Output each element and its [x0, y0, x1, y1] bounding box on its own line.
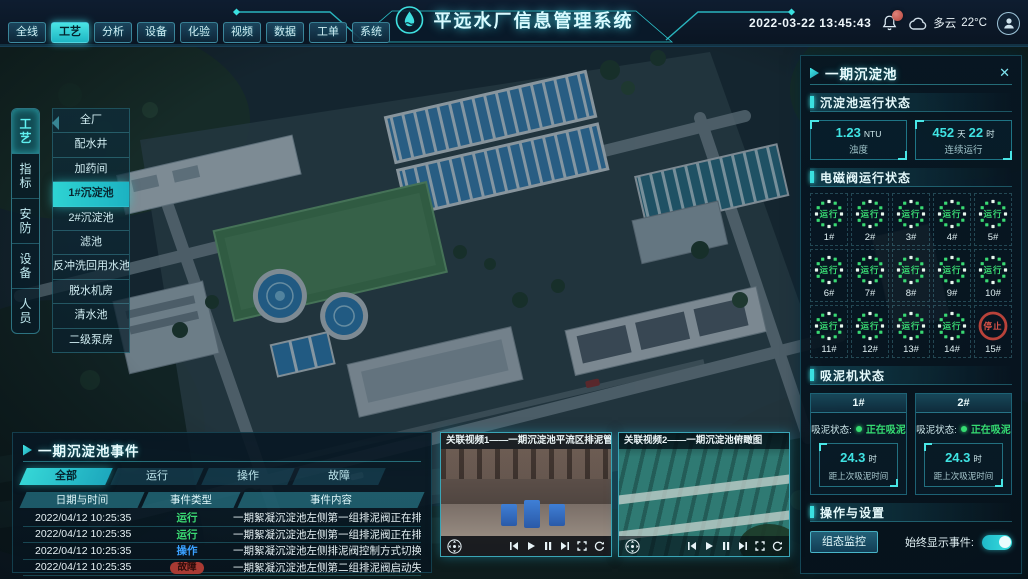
event-filter-tabs: 全部运行操作故障 — [23, 468, 421, 485]
app-logo-icon — [395, 5, 425, 35]
skip-forward-icon[interactable] — [560, 541, 570, 551]
event-tab-故障[interactable]: 故障 — [292, 468, 386, 485]
event-type: 运行 — [141, 527, 233, 542]
section-bar-icon — [810, 506, 814, 518]
valve-8#[interactable]: 运行8# — [892, 249, 930, 302]
valve-gauge-icon: 运行 — [812, 309, 846, 343]
submenu-item-清水池[interactable]: 清水池 — [53, 304, 129, 328]
nav-tab-化验[interactable]: 化验 — [180, 22, 218, 43]
event-row[interactable]: 2022/04/12 10:25:35故障一期絮凝沉淀池左侧第二组排泥阀启动失败 — [23, 560, 421, 577]
weather-display: 多云 22°C — [908, 15, 987, 31]
user-avatar[interactable] — [997, 12, 1020, 35]
sedimentation-pool-panel: 一期沉淀池 ✕ 沉淀池运行状态 1.23 NTU 浊度 452 天 22 时 连… — [800, 55, 1022, 574]
sidebar-tab-设备[interactable]: 设备 — [12, 244, 39, 289]
panel-title: 一期沉淀池 — [825, 63, 997, 83]
event-row[interactable]: 2022/04/12 10:25:35运行一期絮凝沉淀池左侧第一组排泥阀正在排泥 — [23, 527, 421, 544]
submenu-item-滤池[interactable]: 滤池 — [53, 231, 129, 255]
suction-value-box: 24.3时 距上次吸泥时间 — [924, 443, 1003, 487]
valve-12#[interactable]: 运行12# — [851, 305, 889, 358]
operations-row: 组态监控 始终显示事件: — [810, 531, 1012, 553]
mud-suction-cards: 1# 吸泥状态: 正在吸泥 24.3时 距上次吸泥时间 2# 吸泥状态: 正在吸… — [810, 393, 1012, 495]
panel-title-marker-icon — [810, 68, 819, 79]
valve-gauge-icon: 运行 — [853, 197, 887, 231]
nav-tab-系统[interactable]: 系统 — [352, 22, 390, 43]
valve-6#[interactable]: 运行6# — [810, 249, 848, 302]
suction-caption: 距上次吸泥时间 — [820, 470, 897, 482]
suction-status: 正在吸泥 — [971, 421, 1011, 436]
column-header-日期与时间: 日期与时间 — [19, 492, 144, 508]
section-running-status: 沉淀池运行状态 — [810, 93, 1012, 112]
video-controls — [619, 536, 789, 556]
valve-gauge-icon: 运行 — [935, 253, 969, 287]
submenu-item-1#沉淀池[interactable]: 1#沉淀池 — [53, 182, 129, 206]
suction-status: 正在吸泥 — [866, 421, 906, 436]
turbidity-unit: NTU — [864, 129, 881, 139]
event-type: 故障 — [141, 561, 233, 574]
top-bar: 全线工艺分析设备化验视频数据工单系统 平远水厂信息管理系统 2022-03-22… — [0, 0, 1028, 47]
left-sidebar-tabs: 工艺指标安防设备人员 — [11, 108, 40, 334]
suction-hours: 24.3 — [945, 450, 970, 465]
turbidity-label: 浊度 — [849, 142, 868, 156]
always-show-events-toggle[interactable] — [982, 535, 1012, 550]
section-valves: 电磁阀运行状态 — [810, 168, 1012, 187]
submenu-item-全厂[interactable]: 全厂 — [53, 109, 129, 133]
event-time: 2022/04/12 10:25:35 — [23, 528, 141, 540]
valve-status-grid: 运行1#运行2#运行3#运行4#运行5#运行6#运行7#运行8#运行9#运行10… — [810, 193, 1012, 358]
valve-gauge-icon: 运行 — [894, 197, 928, 231]
submenu-item-二级泵房[interactable]: 二级泵房 — [53, 329, 129, 352]
valve-gauge-icon: 运行 — [853, 253, 887, 287]
column-header-事件类型: 事件类型 — [141, 492, 240, 508]
uptime-days-unit: 天 — [957, 128, 966, 140]
video-title: 关联视频1——一期沉淀池平流区排泥管廊 — [441, 433, 611, 449]
nav-tab-设备[interactable]: 设备 — [137, 22, 175, 43]
event-row[interactable]: 2022/04/12 10:25:35操作一期絮凝沉淀池左侧排泥阀控制方式切换为… — [23, 543, 421, 560]
uptime-card: 452 天 22 时 连续运行 — [915, 120, 1012, 160]
fault-badge: 故障 — [170, 562, 203, 574]
valve-gauge-icon: 运行 — [894, 253, 928, 287]
panel-title-marker-icon — [23, 445, 32, 456]
video-panel-2[interactable]: 关联视频2——一期沉淀池俯瞰图 — [618, 432, 790, 557]
video-panel-1[interactable]: 关联视频1——一期沉淀池平流区排泥管廊 — [440, 432, 612, 557]
status-dot-icon — [856, 426, 862, 432]
valve-gauge-icon: 运行 — [935, 197, 969, 231]
cloud-icon — [908, 17, 928, 30]
process-submenu: 全厂配水井加药间1#沉淀池2#沉淀池滤池反冲洗回用水池脱水机房清水池二级泵房 — [52, 108, 130, 353]
uptime-days: 452 — [932, 125, 954, 140]
event-time: 2022/04/12 10:25:35 — [23, 561, 141, 573]
ptz-pad-icon[interactable] — [447, 539, 462, 554]
valve-14#[interactable]: 运行14# — [933, 305, 971, 358]
valve-15#[interactable]: 停止15# — [974, 305, 1012, 358]
submenu-item-反冲洗回用水池[interactable]: 反冲洗回用水池 — [53, 255, 129, 279]
loop-icon[interactable] — [772, 541, 783, 551]
nav-tab-分析[interactable]: 分析 — [94, 22, 132, 43]
running-status-cards: 1.23 NTU 浊度 452 天 22 时 连续运行 — [810, 120, 1012, 160]
valve-4#[interactable]: 运行4# — [933, 193, 971, 246]
video-controls — [441, 536, 611, 556]
nav-tab-数据[interactable]: 数据 — [266, 22, 304, 43]
submenu-item-加药间[interactable]: 加药间 — [53, 158, 129, 182]
sidebar-tab-指标[interactable]: 指标 — [12, 154, 39, 199]
section-bar-icon — [810, 171, 814, 183]
event-content: 一期絮凝沉淀池左侧第一组排泥阀正在排泥 — [233, 510, 421, 525]
valve-3#[interactable]: 运行3# — [892, 193, 930, 246]
valve-13#[interactable]: 运行13# — [892, 305, 930, 358]
mud-machine-card-1: 1# 吸泥状态: 正在吸泥 24.3时 距上次吸泥时间 — [810, 393, 907, 495]
suction-hours-unit: 时 — [973, 454, 982, 464]
event-content: 一期絮凝沉淀池左侧第一组排泥阀正在排泥 — [233, 527, 421, 542]
event-time: 2022/04/12 10:25:35 — [23, 512, 141, 524]
valve-gauge-icon: 运行 — [976, 253, 1010, 287]
valve-gauge-icon: 运行 — [894, 309, 928, 343]
suction-caption: 距上次吸泥时间 — [925, 470, 1002, 482]
event-table-rows: 2022/04/12 10:25:35运行一期絮凝沉淀池左侧第一组排泥阀正在排泥… — [23, 510, 421, 576]
nav-tab-全线[interactable]: 全线 — [8, 22, 46, 43]
valve-gauge-icon: 运行 — [935, 309, 969, 343]
mud-machine-card-2: 2# 吸泥状态: 正在吸泥 24.3时 距上次吸泥时间 — [915, 393, 1012, 495]
event-panel-title: 一期沉淀池事件 — [38, 440, 421, 460]
submenu-item-配水井[interactable]: 配水井 — [53, 133, 129, 157]
turbidity-value: 1.23 — [836, 125, 861, 140]
event-tab-全部[interactable]: 全部 — [19, 468, 113, 485]
event-panel: 一期沉淀池事件 全部运行操作故障 日期与时间事件类型事件内容 2022/04/1… — [12, 432, 432, 573]
fullscreen-icon[interactable] — [577, 541, 587, 551]
event-panel-header: 一期沉淀池事件 — [23, 439, 421, 462]
suction-status-label: 吸泥状态: — [916, 422, 957, 436]
event-content: 一期絮凝沉淀池左侧第二组排泥阀启动失败 — [233, 560, 421, 575]
play-icon[interactable] — [704, 541, 714, 551]
skip-forward-icon[interactable] — [738, 541, 748, 551]
sidebar-tab-安防[interactable]: 安防 — [12, 199, 39, 244]
valve-gauge-icon: 运行 — [812, 253, 846, 287]
event-time: 2022/04/12 10:25:35 — [23, 545, 141, 557]
close-icon[interactable]: ✕ — [997, 65, 1012, 81]
section-bar-icon — [810, 96, 814, 108]
weather-condition: 多云 — [933, 15, 956, 31]
top-nav-tabs: 全线工艺分析设备化验视频数据工单系统 — [8, 22, 390, 43]
submenu-item-脱水机房[interactable]: 脱水机房 — [53, 280, 129, 304]
suction-value-box: 24.3时 距上次吸泥时间 — [819, 443, 898, 487]
uptime-hours-unit: 时 — [986, 128, 995, 140]
skip-back-icon[interactable] — [509, 541, 519, 551]
submenu-item-2#沉淀池[interactable]: 2#沉淀池 — [53, 207, 129, 231]
play-icon[interactable] — [526, 541, 536, 551]
valve-gauge-icon: 运行 — [853, 309, 887, 343]
valve-10#[interactable]: 运行10# — [974, 249, 1012, 302]
pause-icon[interactable] — [543, 541, 553, 551]
ptz-pad-icon[interactable] — [625, 539, 640, 554]
machine-id: 1# — [811, 394, 906, 413]
event-type: 操作 — [141, 543, 233, 558]
weather-temperature: 22°C — [961, 17, 987, 29]
valve-7#[interactable]: 运行7# — [851, 249, 889, 302]
event-tab-操作[interactable]: 操作 — [201, 468, 295, 485]
skip-back-icon[interactable] — [687, 541, 697, 551]
nav-tab-工艺[interactable]: 工艺 — [51, 22, 89, 43]
section-bar-icon — [810, 369, 814, 381]
suction-hours-unit: 时 — [868, 454, 877, 464]
datetime-display: 2022-03-22 13:45:43 — [749, 16, 871, 30]
uptime-hours: 22 — [969, 125, 983, 140]
nav-tab-视频[interactable]: 视频 — [223, 22, 261, 43]
fullscreen-icon[interactable] — [755, 541, 765, 551]
valve-gauge-icon: 停止 — [976, 309, 1010, 343]
notifications-bell-icon[interactable] — [881, 14, 898, 32]
section-operations: 操作与设置 — [810, 503, 1012, 522]
machine-id: 2# — [916, 394, 1011, 413]
loop-icon[interactable] — [594, 541, 605, 551]
suction-status-label: 吸泥状态: — [811, 422, 852, 436]
status-dot-icon — [961, 426, 967, 432]
nav-tab-工单[interactable]: 工单 — [309, 22, 347, 43]
valve-9#[interactable]: 运行9# — [933, 249, 971, 302]
suction-hours: 24.3 — [840, 450, 865, 465]
scada-monitor-button[interactable]: 组态监控 — [810, 531, 878, 553]
valve-gauge-icon: 运行 — [976, 197, 1010, 231]
valve-gauge-icon: 运行 — [812, 197, 846, 231]
alert-badge — [892, 10, 903, 21]
video-title: 关联视频2——一期沉淀池俯瞰图 — [619, 433, 789, 449]
sidebar-tab-人员[interactable]: 人员 — [12, 289, 39, 333]
sidebar-tab-工艺[interactable]: 工艺 — [12, 109, 39, 154]
column-header-事件内容: 事件内容 — [237, 492, 424, 508]
event-content: 一期絮凝沉淀池左侧排泥阀控制方式切换为手动 — [233, 543, 421, 558]
page-title: 平远水厂信息管理系统 — [434, 7, 634, 33]
event-table-header: 日期与时间事件类型事件内容 — [23, 492, 421, 508]
topbar-right: 2022-03-22 13:45:43 多云 22°C — [749, 0, 1020, 46]
turbidity-card: 1.23 NTU 浊度 — [810, 120, 907, 160]
always-show-events-label: 始终显示事件: — [905, 534, 974, 550]
section-mud-suction: 吸泥机状态 — [810, 366, 1012, 385]
pause-icon[interactable] — [721, 541, 731, 551]
valve-2#[interactable]: 运行2# — [851, 193, 889, 246]
valve-11#[interactable]: 运行11# — [810, 305, 848, 358]
valve-5#[interactable]: 运行5# — [974, 193, 1012, 246]
event-tab-运行[interactable]: 运行 — [110, 468, 204, 485]
uptime-label: 连续运行 — [944, 142, 982, 156]
event-row[interactable]: 2022/04/12 10:25:35运行一期絮凝沉淀池左侧第一组排泥阀正在排泥 — [23, 510, 421, 527]
panel-header: 一期沉淀池 ✕ — [810, 62, 1012, 85]
app-header: 平远水厂信息管理系统 — [395, 5, 634, 35]
event-type: 运行 — [141, 510, 233, 525]
valve-1#[interactable]: 运行1# — [810, 193, 848, 246]
